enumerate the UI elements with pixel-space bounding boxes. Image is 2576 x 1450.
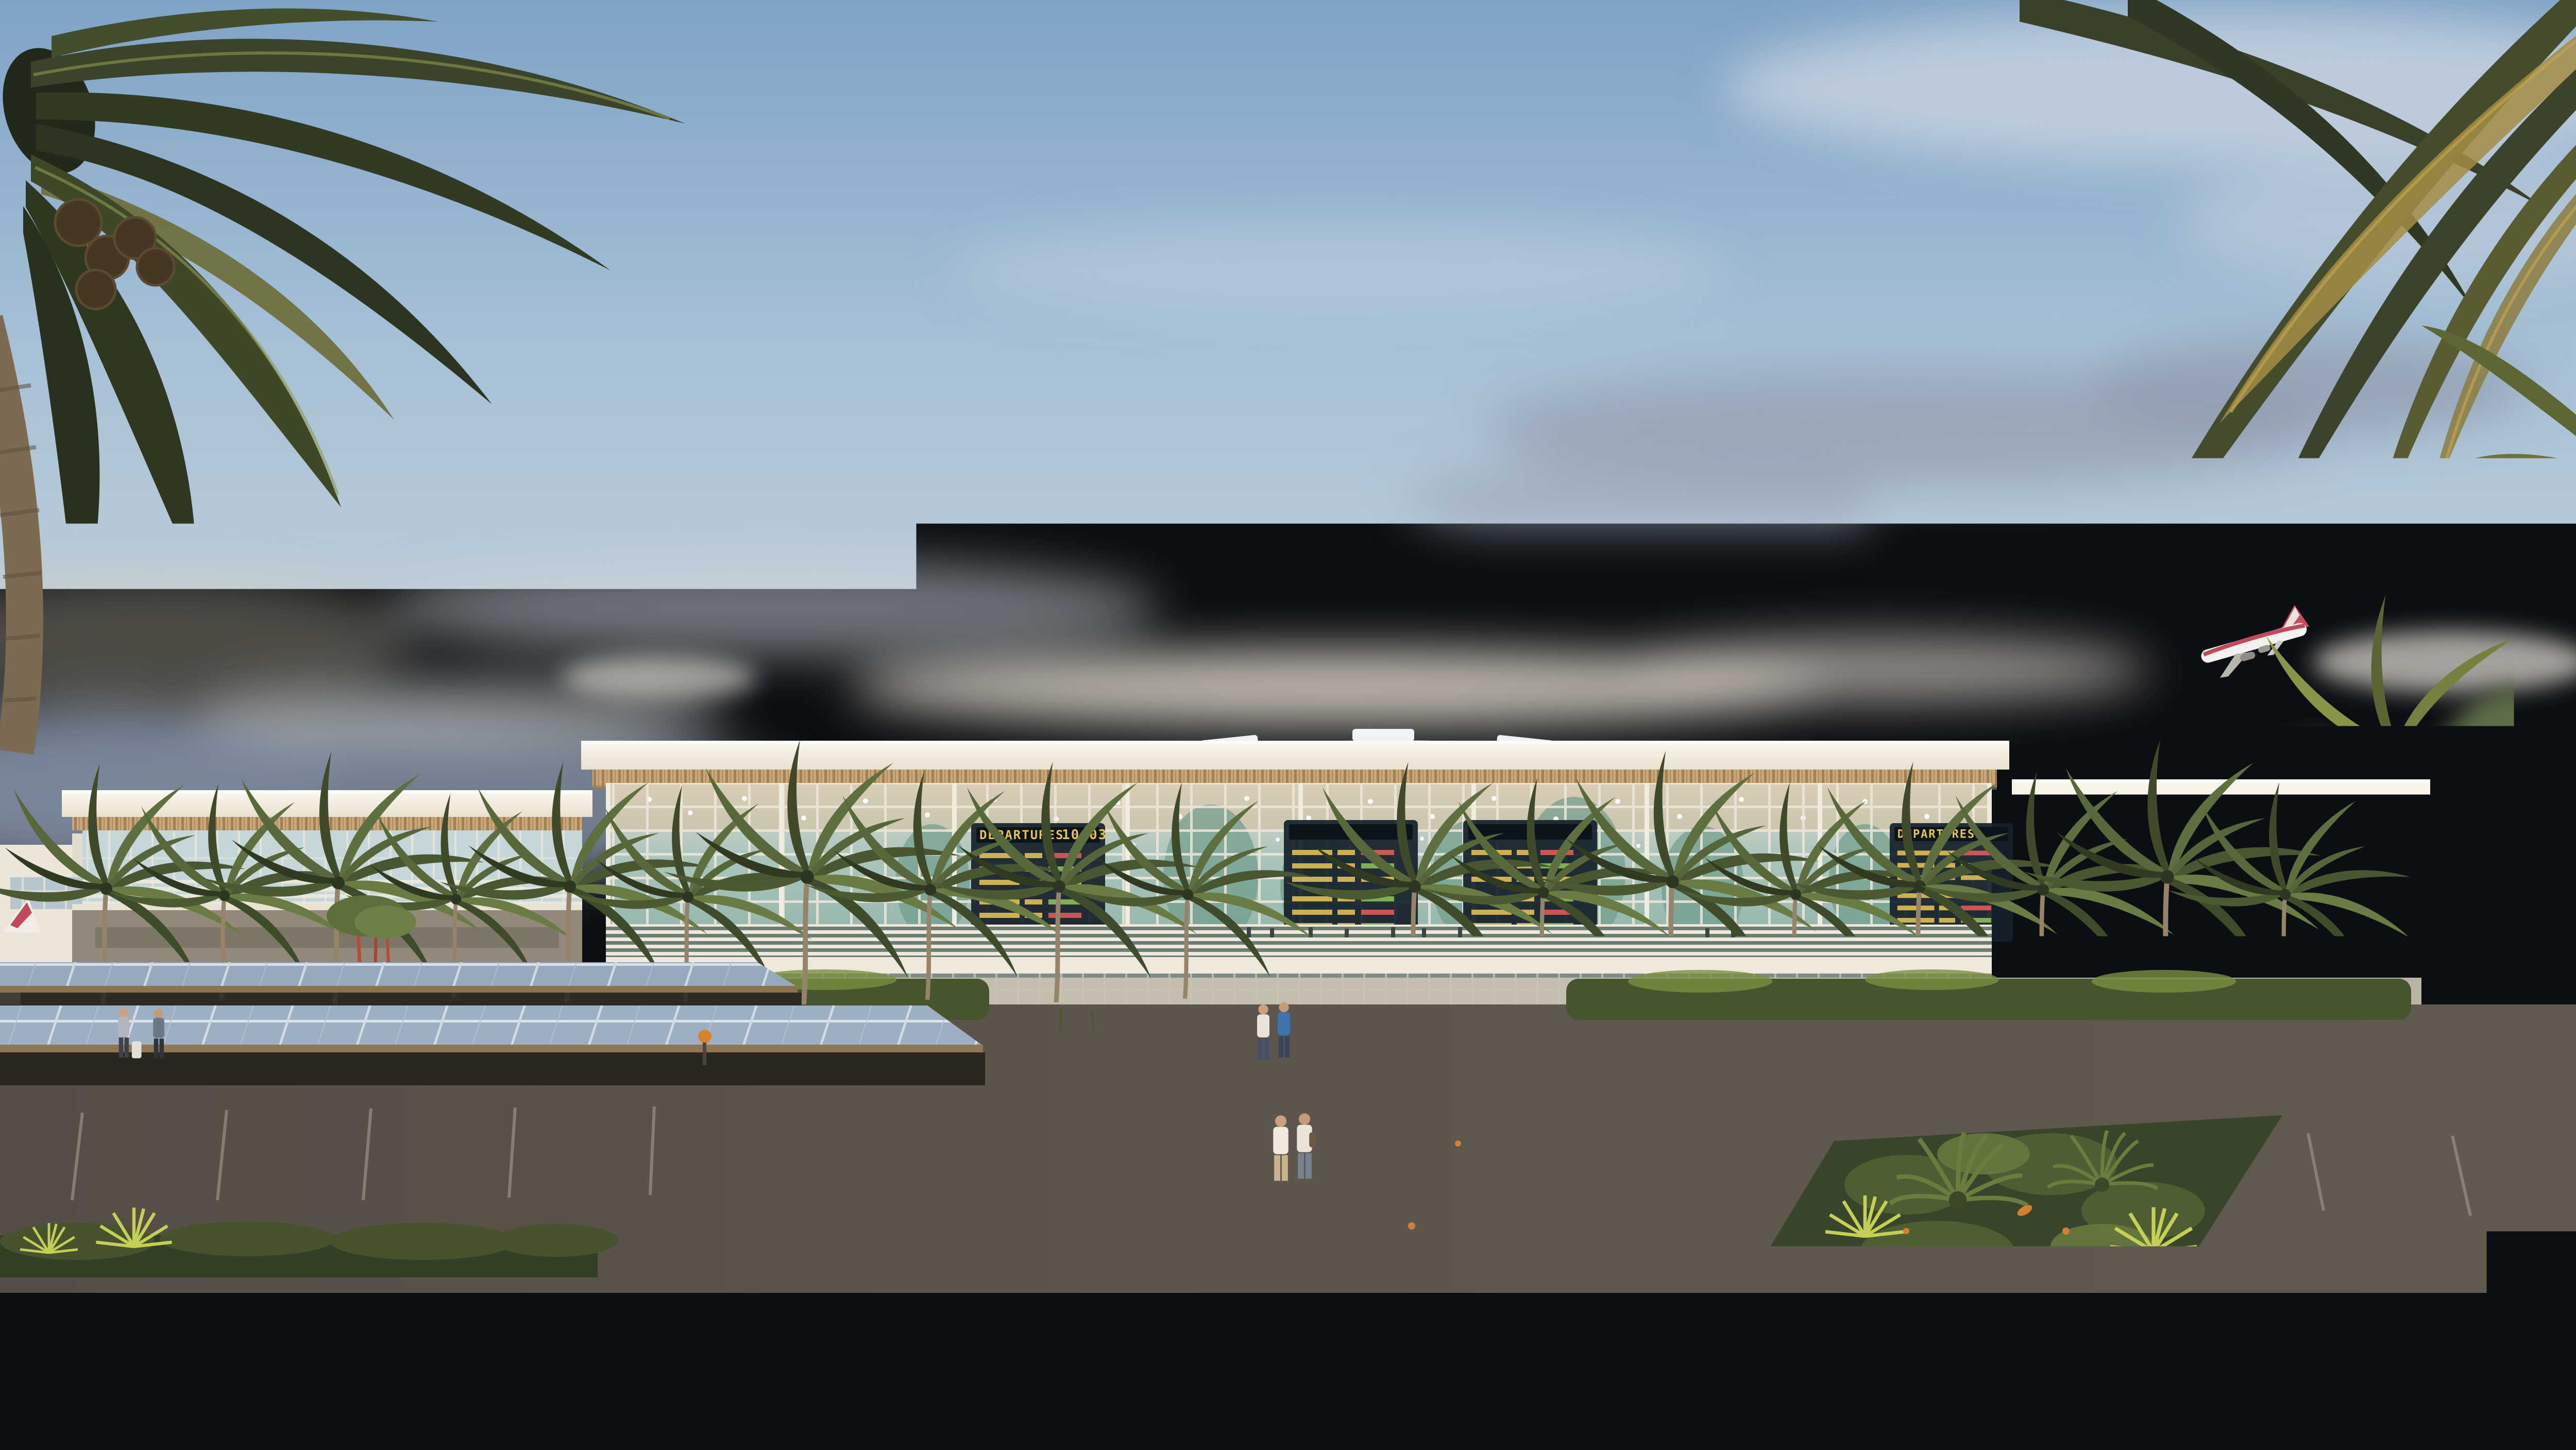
foreground-road: [0, 1276, 2576, 1450]
flower-canopy: [963, 947, 1587, 1019]
orange-sign: [698, 1030, 711, 1043]
car-headlights-suv: [953, 1051, 1042, 1128]
screenshot-root: DEPARTURES 10:03 DEPARTURES: [0, 0, 2576, 1450]
car-white-mercedes-suv: [2294, 1051, 2518, 1181]
airport-scene: DEPARTURES 10:03 DEPARTURES: [0, 0, 2576, 1450]
car-driving-black-sedan: [1631, 1111, 1801, 1208]
median-planter-left: [580, 1120, 1087, 1287]
car-black-suv: [222, 1074, 364, 1174]
small-red-sign: [1539, 966, 1553, 977]
kerb: [0, 1276, 2576, 1290]
bottom-shadow: [0, 1415, 2576, 1450]
